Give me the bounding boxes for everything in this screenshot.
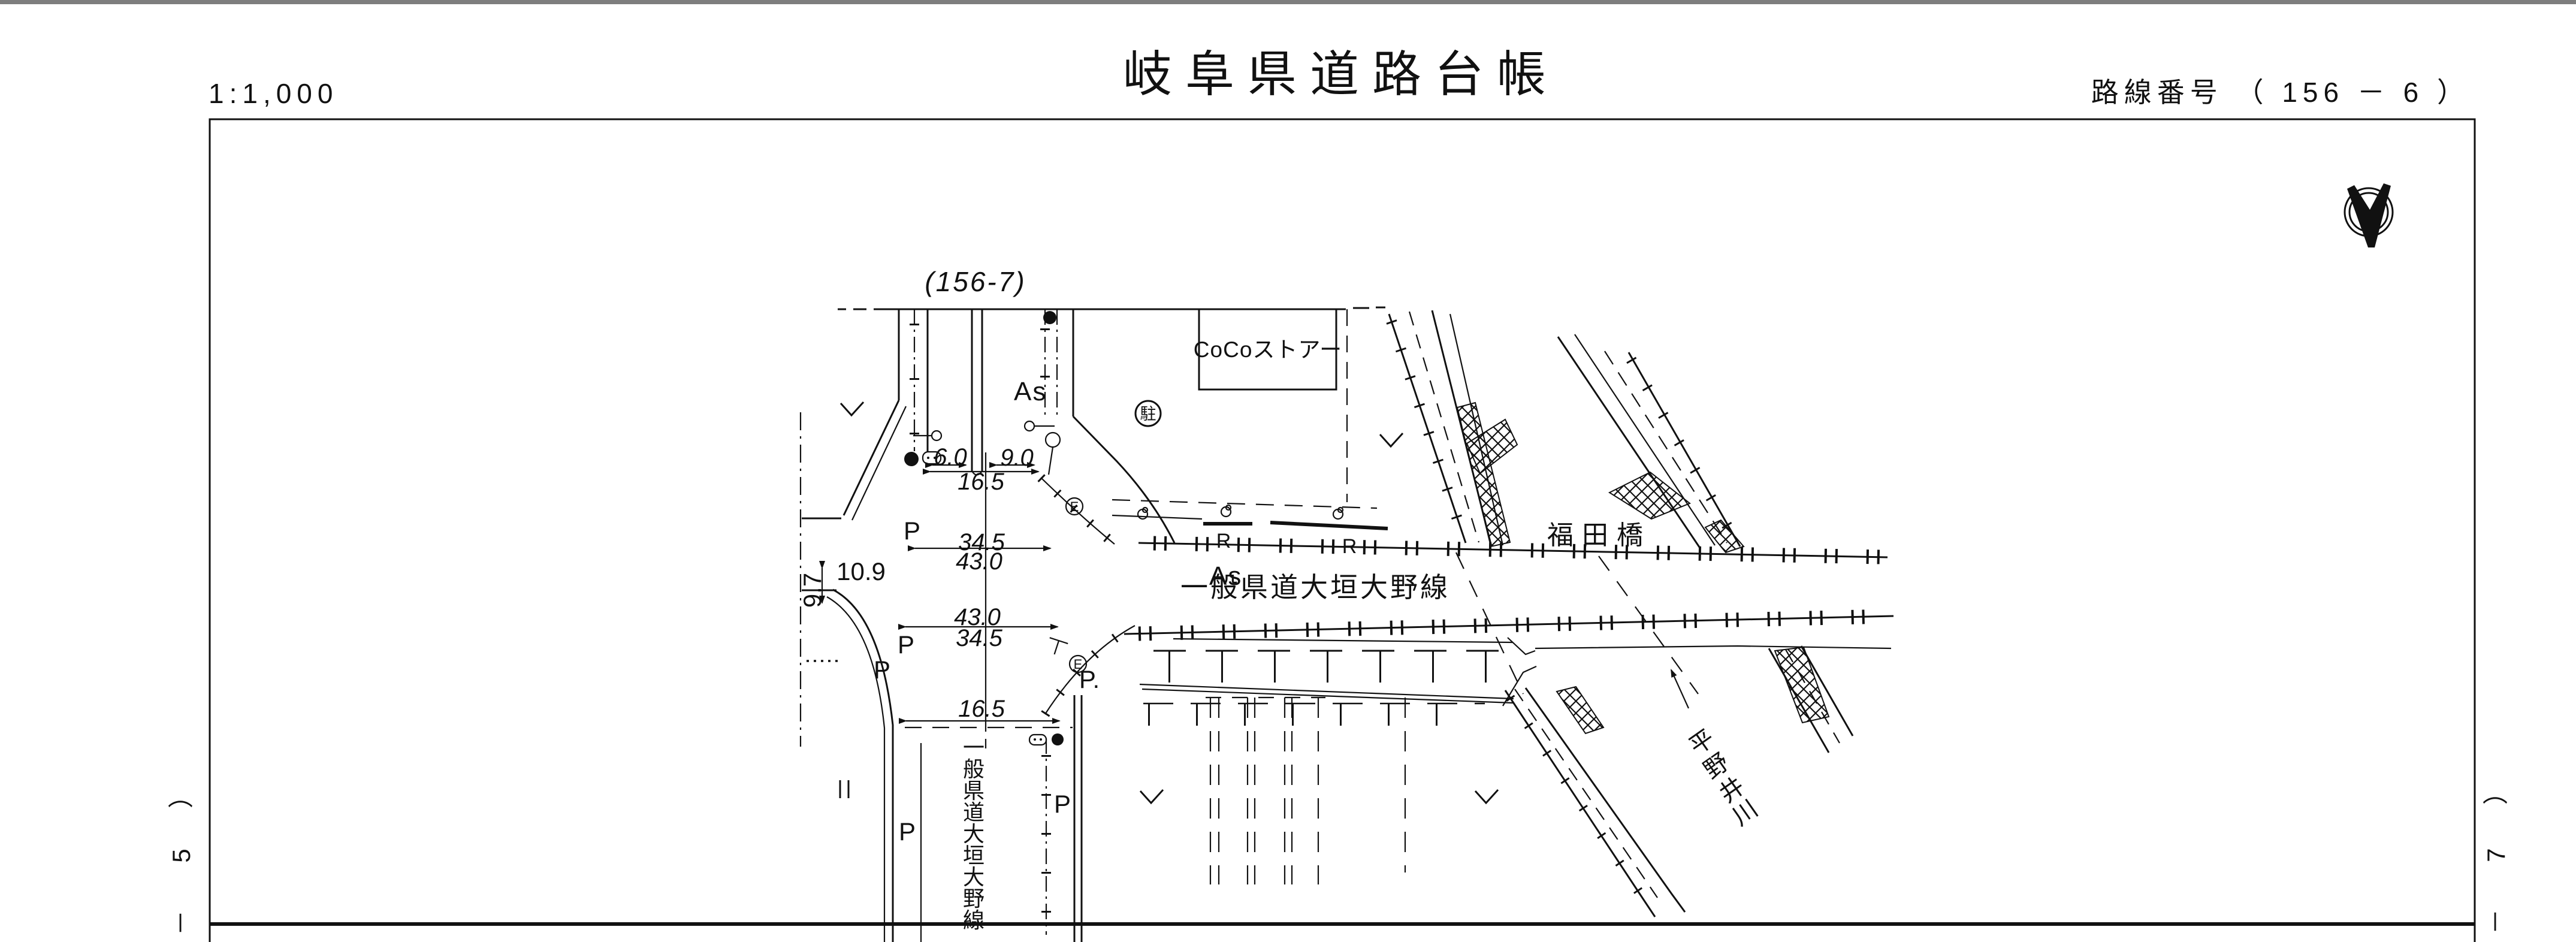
river-name: 平 野 井 川	[1685, 724, 1763, 831]
p-mark-1: P	[904, 517, 920, 545]
route-v-char-5: 大	[963, 822, 985, 846]
r-mark-1: R	[1216, 530, 1231, 552]
right-sheet-char-3: －	[2482, 909, 2510, 934]
surface-label-ns: As	[1014, 377, 1047, 406]
p-mark-4: P	[899, 817, 916, 846]
dim-right-width: 9.0	[1000, 445, 1034, 471]
dim-north-width: 16.5	[958, 469, 1005, 495]
route-v-char-6: 垣	[963, 843, 985, 868]
right-margin-sheet-ref: ） 7 －	[2482, 780, 2510, 934]
dim-left-width: 6.0	[934, 444, 967, 470]
p-mark-6: P.	[1079, 665, 1100, 693]
dim-west-height: 9.7	[798, 573, 826, 608]
dim-west-width: 10.9	[836, 557, 886, 585]
p-mark-3: P	[874, 656, 890, 684]
route-v-char-4: 道	[963, 800, 985, 825]
dim-b-bottom: 34.5	[956, 625, 1003, 651]
p-mark-2: P	[898, 630, 914, 659]
dim-a-bottom: 43.0	[956, 548, 1002, 575]
north-compass-icon	[2345, 183, 2393, 247]
left-margin-sheet-ref: ） 5 －	[167, 783, 195, 935]
map-scale: 1:1,000	[209, 78, 338, 109]
route-name-horizontal: 一般県道大垣大野線	[1180, 572, 1450, 603]
bridge-name: 福田橋	[1547, 521, 1651, 550]
header: 1:1,000 岐阜県道路台帳 路線番号 （ 156 － 6 ）	[209, 47, 2470, 109]
route-v-char-3: 県	[963, 778, 985, 803]
levee-bands	[1389, 310, 1853, 917]
river-flow-arrow	[1671, 670, 1689, 708]
left-sheet-char-3: －	[167, 910, 195, 935]
r-mark-2: R	[1342, 535, 1357, 558]
route-name-vertical: 一 般 県 道 大 垣 大 野 線	[963, 735, 985, 932]
tree-symbols	[1138, 505, 1343, 519]
route-v-char-9: 線	[963, 908, 985, 932]
coco-store-label: CoCoストアー	[1194, 337, 1342, 362]
route-v-char-1: 一	[963, 735, 985, 760]
double-bar-symbol	[840, 780, 848, 798]
right-sheet-char-1: ）	[2482, 780, 2510, 805]
route-v-char-8: 野	[963, 886, 985, 911]
road-ledger-map-sheet: 1:1,000 岐阜県道路台帳 路線番号 （ 156 － 6 ） ） 5 － ）…	[0, 0, 2576, 942]
north-south-road: (156-7)	[801, 266, 1385, 942]
route-v-char-7: 大	[963, 865, 985, 889]
utility-e-label-1: E	[1070, 499, 1079, 514]
buildings-and-symbols: CoCoストアー 駐 E E	[841, 309, 1498, 803]
parcel-boundaries	[1206, 698, 1405, 884]
left-sheet-char-2: 5	[167, 849, 195, 862]
right-sheet-char-2: 7	[2482, 848, 2510, 862]
parking-circle-label: 駐	[1140, 405, 1156, 423]
dimension-annotations: 6.0 9.0 16.5 34.5 43.0 43.0 34.5 16.5 10…	[798, 444, 1073, 750]
page-title: 岐阜県道路台帳	[1123, 47, 1559, 102]
dim-south-width: 16.5	[958, 696, 1005, 722]
left-sheet-char-1: ）	[167, 783, 195, 808]
route-v-char-2: 般	[963, 757, 985, 781]
map-frame	[210, 119, 2475, 942]
p-mark-5: P	[1054, 790, 1071, 818]
adjacent-sheet-label: (156-7)	[925, 266, 1026, 297]
route-number: 路線番号 （ 156 － 6 ）	[2091, 77, 2470, 108]
